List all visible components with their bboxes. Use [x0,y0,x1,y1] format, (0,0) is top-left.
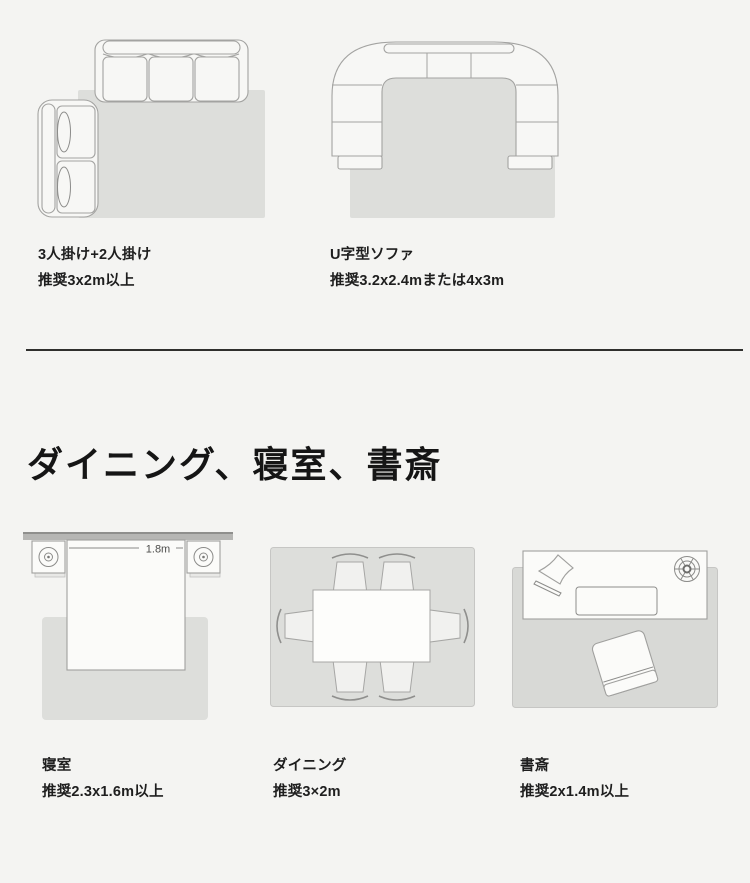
study-diagram [512,550,718,708]
section-divider [26,349,743,351]
figure-size: 推奨2.3x1.6m以上 [42,779,164,805]
dining-table [313,590,430,662]
figure-size: 推奨2x1.4m以上 [520,779,629,805]
section-heading: ダイニング、寝室、書斎 [27,436,442,488]
figure-size: 推奨3x2m以上 [38,268,151,294]
fan-icon [675,557,700,582]
three-seat-sofa [95,40,248,102]
rug-area [78,90,265,218]
nightstand-right [187,541,220,577]
figure-title: 寝室 [42,753,164,779]
figure-title: 書斎 [520,753,629,779]
caption-dining: ダイニング 推奨3×2m [273,753,347,805]
figure-title: ダイニング [273,753,347,779]
nightstand-left [32,541,65,577]
caption-bedroom: 寝室 推奨2.3x1.6m以上 [42,753,164,805]
two-seat-sofa [38,100,98,217]
dining-diagram [270,547,475,707]
rug-size-guide-page: 3人掛け+2人掛け 推奨3x2m以上 U字型ソファ 推奨3.2x2.4mまたは4… [0,0,750,883]
caption-l-shape-sofa: 3人掛け+2人掛け 推奨3x2m以上 [38,242,151,294]
figure-size: 推奨3.2x2.4mまたは4x3m [330,268,504,294]
caption-u-shape-sofa: U字型ソファ 推奨3.2x2.4mまたは4x3m [330,242,504,294]
bed [67,540,185,670]
figure-title: U字型ソファ [330,242,504,268]
bedroom-diagram: 1.8m [23,531,233,722]
l-shape-sofa-diagram [28,25,300,225]
bed-width-label: 1.8m [146,544,170,556]
figure-title: 3人掛け+2人掛け [38,242,151,268]
caption-study: 書斎 推奨2x1.4m以上 [520,753,629,805]
u-shape-sofa-diagram [330,38,562,230]
figure-size: 推奨3×2m [273,779,347,805]
wall-edge [23,532,233,534]
